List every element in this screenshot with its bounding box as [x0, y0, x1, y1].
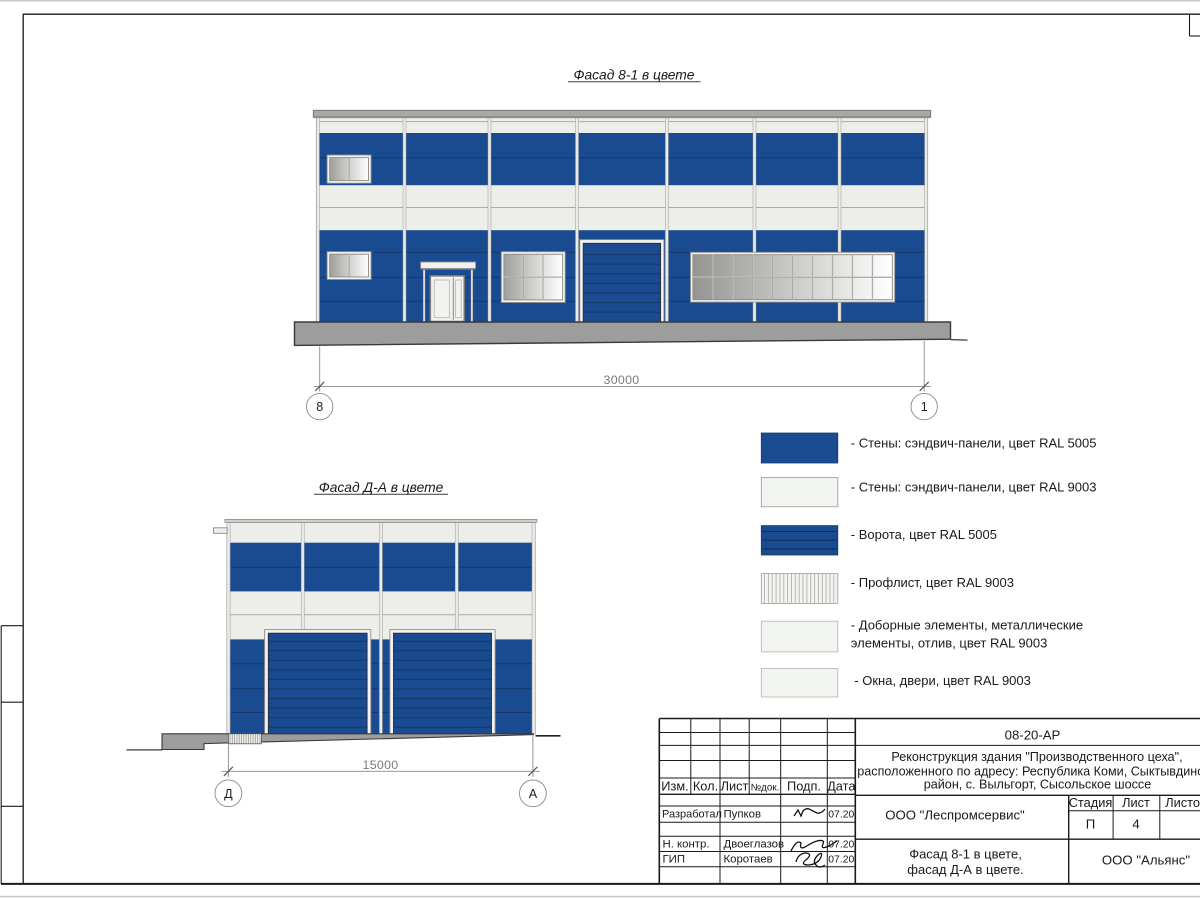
- svg-text:Фасад 8-1 в цвете: Фасад 8-1 в цвете: [574, 67, 695, 82]
- svg-text:Листов: Листов: [1165, 795, 1200, 810]
- svg-text:элементы, отлив, цвет RAL 9003: элементы, отлив, цвет RAL 9003: [851, 636, 1048, 651]
- svg-text:Фасад Д-А в цвете: Фасад Д-А в цвете: [319, 480, 444, 495]
- svg-text:Двоеглазов: Двоеглазов: [724, 839, 785, 851]
- svg-text:Кол.: Кол.: [693, 778, 718, 793]
- svg-text:- Профлист, цвет RAL 9003: - Профлист, цвет RAL 9003: [851, 575, 1014, 590]
- svg-text:30000: 30000: [604, 373, 640, 387]
- svg-text:Разработал: Разработал: [662, 809, 722, 821]
- svg-text:Коротаев: Коротаев: [724, 854, 773, 866]
- svg-text:ГИП: ГИП: [663, 854, 686, 866]
- svg-text:4: 4: [1132, 816, 1139, 831]
- svg-text:Стадия: Стадия: [1069, 795, 1113, 810]
- svg-text:8: 8: [316, 400, 323, 414]
- svg-text:П: П: [1086, 816, 1095, 831]
- svg-text:Фасад 8-1 в цвете,: Фасад 8-1 в цвете,: [909, 847, 1022, 862]
- svg-text:- Ворота, цвет RAL 5005: - Ворота, цвет RAL 5005: [851, 527, 997, 542]
- svg-text:Реконструкция здания "Производ: Реконструкция здания "Производственного …: [891, 750, 1182, 764]
- svg-text:Подп.: Подп.: [787, 778, 821, 793]
- svg-text:№док.: №док.: [751, 782, 780, 793]
- svg-text:Д: Д: [224, 787, 233, 801]
- svg-text:08-20-АР: 08-20-АР: [1005, 728, 1061, 743]
- svg-text:Пупков: Пупков: [724, 809, 762, 821]
- svg-text:- Окна, двери, цвет RAL 9003: - Окна, двери, цвет RAL 9003: [854, 673, 1031, 688]
- svg-text:07.20: 07.20: [828, 839, 854, 850]
- svg-text:район, с. Выльгорт, Сысольское: район, с. Выльгорт, Сысольское шоссе: [924, 777, 1151, 791]
- svg-text:ООО "Альянс": ООО "Альянс": [1102, 853, 1190, 868]
- svg-text:Лист: Лист: [721, 778, 749, 793]
- svg-text:- Стены: сэндвич-панели, цвет: - Стены: сэндвич-панели, цвет RAL 9003: [851, 479, 1097, 494]
- svg-text:ООО "Леспромсервис": ООО "Леспромсервис": [885, 807, 1025, 822]
- svg-text:Н. контр.: Н. контр.: [663, 839, 710, 851]
- svg-text:Лист: Лист: [1122, 795, 1150, 810]
- svg-text:Дата: Дата: [827, 778, 856, 793]
- svg-text:- Стены: сэндвич-панели, цвет: - Стены: сэндвич-панели, цвет RAL 5005: [851, 435, 1097, 450]
- svg-text:1: 1: [921, 400, 928, 414]
- svg-text:07.20: 07.20: [828, 809, 854, 820]
- svg-text:А: А: [529, 787, 538, 801]
- svg-text:- Доборные элементы, металличе: - Доборные элементы, металлические: [851, 618, 1083, 633]
- svg-text:15000: 15000: [363, 758, 399, 772]
- svg-text:Изм.: Изм.: [661, 778, 688, 793]
- svg-text:фасад Д-А в цвете.: фасад Д-А в цвете.: [907, 862, 1023, 877]
- svg-text:07.20: 07.20: [828, 854, 854, 865]
